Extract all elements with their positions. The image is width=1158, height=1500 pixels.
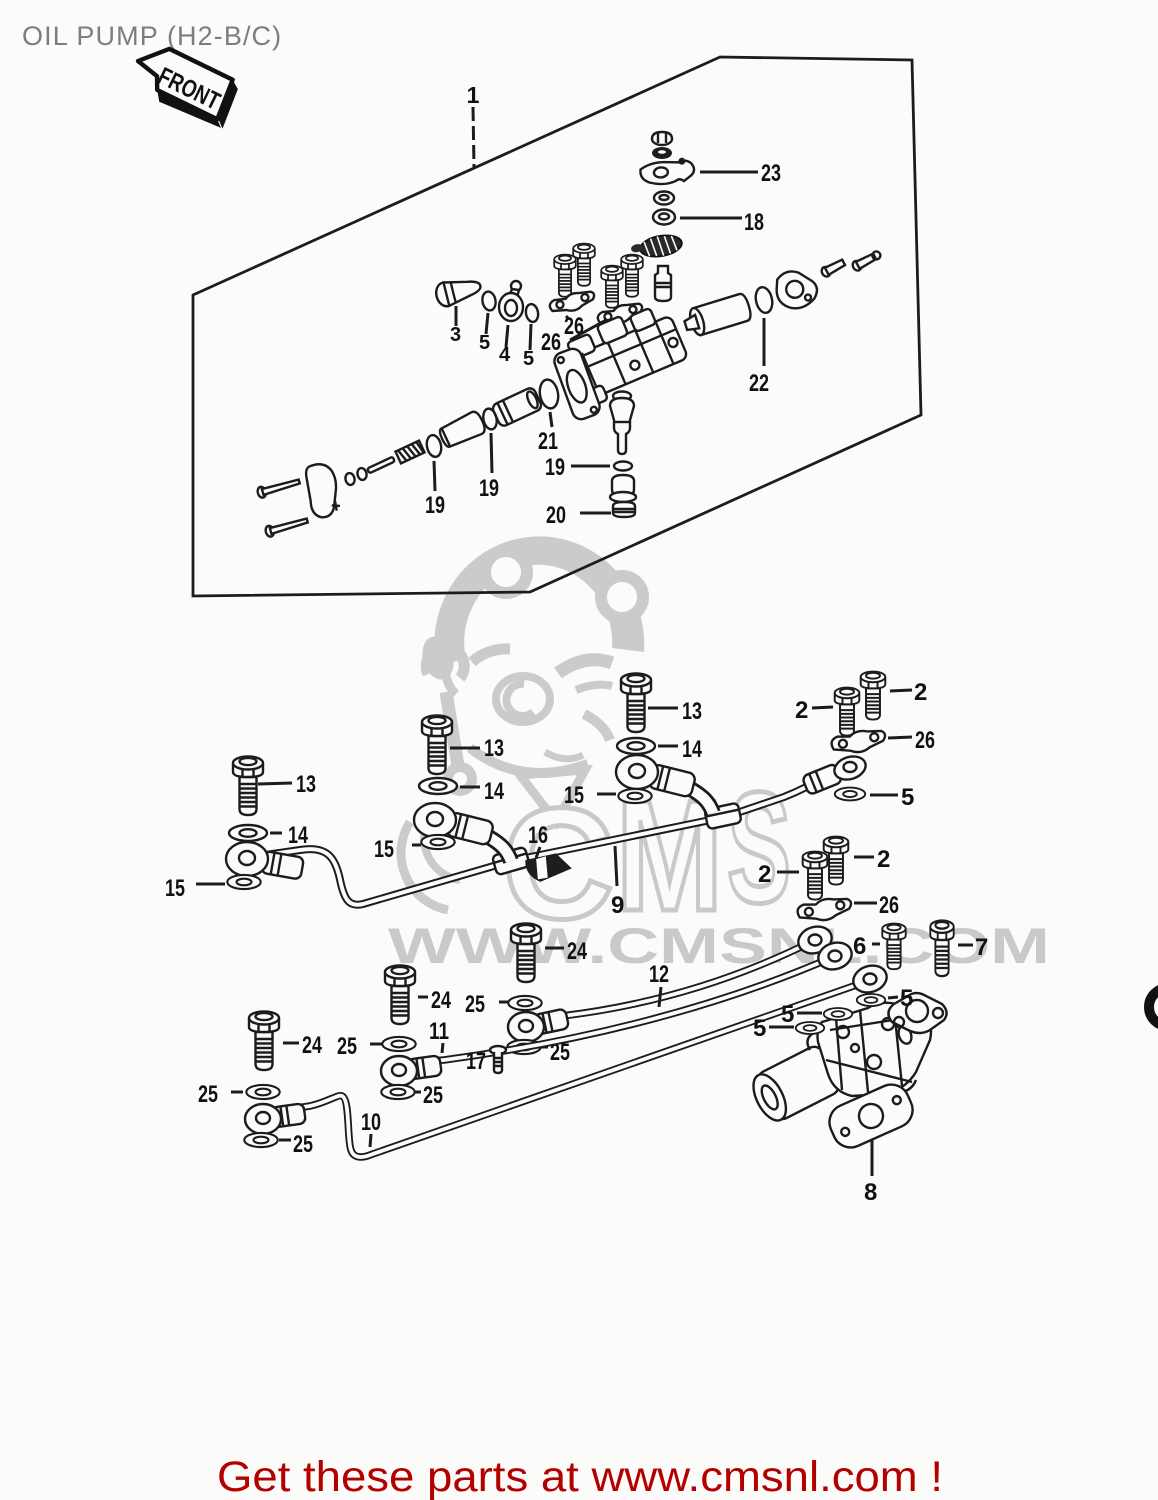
svg-text:15: 15 xyxy=(564,782,584,809)
svg-text:20: 20 xyxy=(546,502,566,529)
svg-text:5: 5 xyxy=(781,1001,794,1028)
svg-text:16: 16 xyxy=(528,822,548,849)
svg-text:23: 23 xyxy=(761,160,781,187)
svg-text:8: 8 xyxy=(864,1179,877,1206)
svg-text:25: 25 xyxy=(465,991,485,1018)
svg-text:7: 7 xyxy=(975,934,988,961)
svg-text:9: 9 xyxy=(611,892,624,919)
svg-text:26: 26 xyxy=(915,727,935,754)
svg-text:18: 18 xyxy=(744,209,764,236)
svg-text:25: 25 xyxy=(337,1033,357,1060)
svg-text:15: 15 xyxy=(165,875,185,902)
svg-text:2: 2 xyxy=(877,846,890,873)
svg-text:14: 14 xyxy=(682,736,702,763)
svg-text:24: 24 xyxy=(431,987,451,1014)
svg-text:11: 11 xyxy=(429,1018,449,1045)
svg-text:13: 13 xyxy=(296,771,316,798)
svg-text:3: 3 xyxy=(450,324,461,346)
svg-text:24: 24 xyxy=(302,1032,322,1059)
svg-text:2: 2 xyxy=(795,697,808,724)
svg-text:5: 5 xyxy=(479,332,490,354)
svg-text:13: 13 xyxy=(484,735,504,762)
svg-text:22: 22 xyxy=(749,370,769,397)
svg-text:2: 2 xyxy=(914,679,927,706)
svg-text:15: 15 xyxy=(374,836,394,863)
svg-text:6: 6 xyxy=(853,933,866,960)
svg-text:25: 25 xyxy=(293,1131,313,1158)
svg-text:17: 17 xyxy=(466,1048,486,1075)
svg-text:1: 1 xyxy=(467,82,480,108)
svg-text:14: 14 xyxy=(288,822,308,849)
svg-text:26: 26 xyxy=(564,313,584,340)
svg-text:21: 21 xyxy=(538,428,558,455)
svg-text:26: 26 xyxy=(541,329,561,356)
svg-text:14: 14 xyxy=(484,778,504,805)
svg-text:26: 26 xyxy=(879,892,899,919)
svg-text:Get these parts at www.cmsnl.c: Get these parts at www.cmsnl.com ! xyxy=(217,1453,943,1500)
svg-text:S: S xyxy=(727,760,791,936)
svg-text:5: 5 xyxy=(753,1015,766,1042)
svg-text:5: 5 xyxy=(900,985,913,1012)
svg-text:19: 19 xyxy=(425,492,445,519)
svg-text:5: 5 xyxy=(901,784,914,811)
svg-text:2: 2 xyxy=(758,861,771,888)
svg-text:24: 24 xyxy=(567,938,587,965)
svg-text:19: 19 xyxy=(479,475,499,502)
svg-text:12: 12 xyxy=(649,961,669,988)
svg-text:5: 5 xyxy=(523,348,534,370)
svg-text:19: 19 xyxy=(545,454,565,481)
svg-text:25: 25 xyxy=(198,1081,218,1108)
svg-text:10: 10 xyxy=(361,1109,381,1136)
svg-text:4: 4 xyxy=(499,344,511,366)
svg-text:OIL PUMP (H2-B/C): OIL PUMP (H2-B/C) xyxy=(22,21,282,51)
svg-text:25: 25 xyxy=(423,1082,443,1109)
svg-text:13: 13 xyxy=(682,698,702,725)
